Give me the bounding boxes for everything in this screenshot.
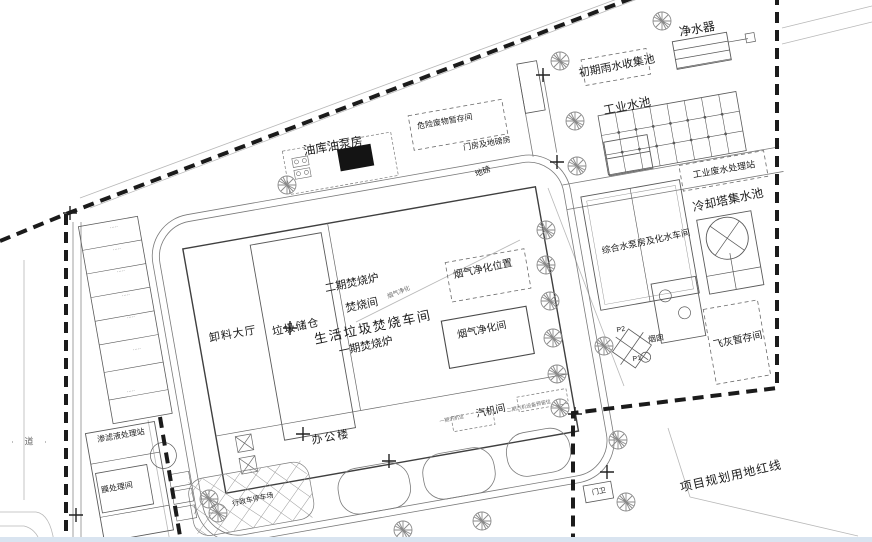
plan-rotated-group [35, 22, 834, 542]
flue-gas-room-outline [441, 306, 534, 368]
ring-road [130, 22, 831, 542]
gatehouse-outline [604, 135, 653, 176]
bottom-strip [0, 537, 872, 542]
site-plan-linework [0, 0, 872, 542]
perimeter-road [73, 222, 81, 542]
cooling-tower-pads [642, 211, 771, 344]
context-lines [0, 0, 872, 542]
west-utility-strip [78, 216, 172, 423]
survey-markers [63, 68, 614, 522]
trees [200, 12, 671, 539]
parking-bays [334, 425, 575, 517]
label-road-note: · 道 · [11, 438, 51, 447]
site-plan: 净水器 初期雨水收集池 工业水池 工业废水处理站 冷却塔集水池 综合水泵房及化水… [0, 0, 872, 542]
label-point-p2: P2 [616, 326, 626, 334]
label-point-p1: P1 [632, 355, 642, 363]
